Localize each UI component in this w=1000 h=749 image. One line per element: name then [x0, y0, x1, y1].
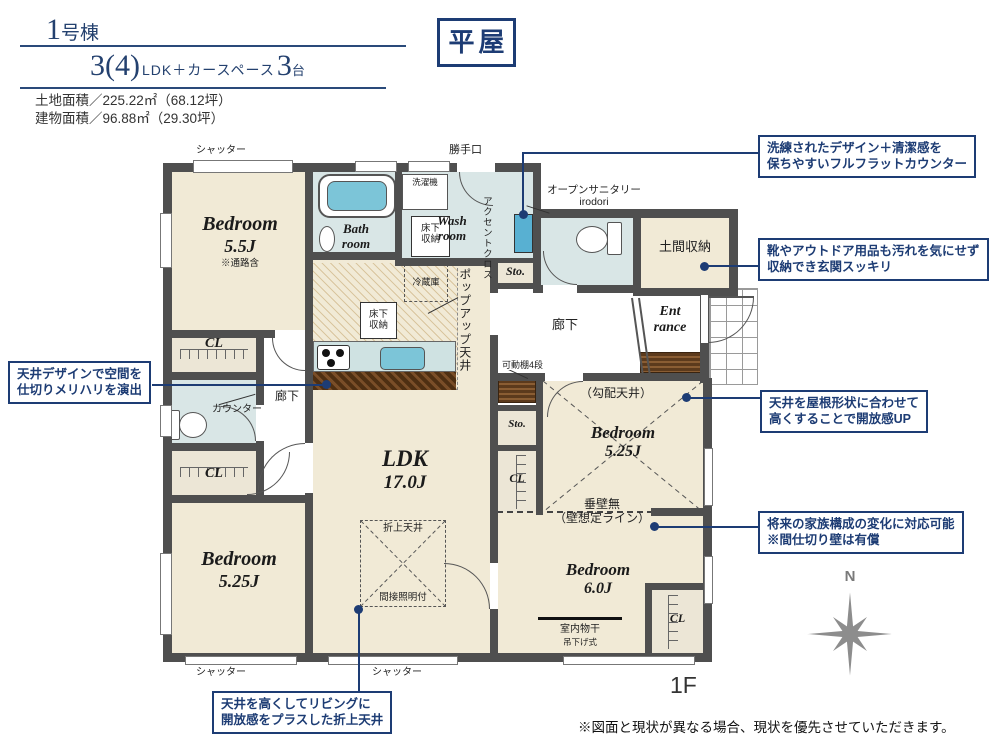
open-sanitary-basin	[514, 214, 533, 253]
room-name: Bedroom	[175, 548, 303, 571]
unit-number: 1	[46, 13, 61, 46]
window	[408, 161, 450, 172]
wall	[703, 378, 712, 662]
callout-line: 将来の家族構成の変化に対応可能	[767, 516, 955, 532]
shutter-label-bottom-1: シャッター	[196, 667, 246, 679]
wall	[163, 495, 305, 503]
bedroom-6-label: Bedroom 6.0J	[535, 560, 661, 598]
underfloor-line: 収納	[413, 235, 448, 246]
room-name: Ent	[642, 304, 698, 320]
fridge-label: 冷蔵庫	[406, 277, 446, 287]
open-sanitary-label: オープンサニタリー irodori	[540, 184, 648, 208]
wall	[729, 209, 738, 297]
land-area: 土地面積／225.22㎡（68.12坪）	[35, 93, 232, 109]
underfloor-storage-label: 床下 収納	[413, 224, 448, 246]
callout-dot	[700, 262, 709, 271]
underfloor-storage-label: 床下 収納	[363, 310, 394, 332]
shutter-window	[328, 656, 458, 665]
wall	[533, 209, 738, 218]
callout-connector	[522, 153, 524, 213]
callout-line: 靴やアウトドア用品も汚れを気にせず	[767, 243, 980, 259]
popup-ceiling-label: ポップアップ天井	[457, 268, 471, 378]
single-story-badge: 平屋	[437, 18, 516, 67]
floor-number: 1F	[670, 672, 697, 698]
window	[563, 656, 695, 665]
callout-connector	[687, 397, 760, 399]
closet-2-label: CL	[172, 466, 256, 482]
wall	[395, 163, 402, 258]
bedroom-525-left-label: Bedroom 5.25J	[175, 548, 303, 592]
sanitary-line: irodori	[540, 196, 648, 208]
movable-shelf-label: 可動棚4段	[502, 360, 543, 370]
wall	[498, 258, 533, 263]
disclaimer-text: ※図面と現状が異なる場合、現状を優先させていただきます。	[578, 720, 955, 736]
stove	[317, 345, 350, 370]
wall	[497, 373, 703, 381]
room-name: rance	[642, 320, 698, 336]
room-name: Bath	[330, 222, 382, 237]
floor-plan-page: 1号棟 3(4) LDK＋カースペース 3 台 土地面積／225.22㎡（68.…	[0, 0, 1000, 749]
kitchen-counter-front	[313, 372, 456, 390]
sloped-ceiling-label: （勾配天井）	[580, 387, 652, 401]
unit-suffix: 号棟	[61, 23, 99, 44]
front-door-leaf	[708, 296, 754, 298]
unit-title: 1号棟	[46, 13, 99, 48]
shutter-window	[185, 656, 297, 665]
door-opening	[305, 443, 313, 493]
callout-sloped-ceiling: 天井を屋根形状に合わせて 高くすることで開放感UP	[760, 390, 928, 433]
wall	[498, 283, 533, 289]
coffered-ceiling-label: 折上天井	[375, 523, 431, 535]
callout-connector	[522, 152, 758, 154]
callout-flat-counter: 洗練されたデザイン＋清潔感を 保ちやすいフルフラットカウンター	[758, 135, 976, 178]
burner	[327, 359, 335, 367]
closet-3-label: CL	[652, 612, 703, 626]
accent-cloth-label: アクセントクロス	[480, 196, 491, 288]
window	[704, 448, 713, 506]
wall	[533, 163, 541, 293]
callout-line: 保ちやすいフルフラットカウンター	[767, 156, 967, 172]
callout-connector	[152, 384, 326, 386]
sanitary-line: オープンサニタリー	[540, 184, 648, 196]
callout-ceiling-design: 天井デザインで空間を 仕切りメリハリを演出	[8, 361, 151, 404]
wall	[163, 372, 263, 380]
wall	[536, 377, 543, 515]
callout-line: 天井を屋根形状に合わせて	[769, 395, 919, 411]
room-size: 5.25J	[560, 443, 686, 461]
callout-dot	[519, 210, 528, 219]
hallway-top-label: 廊下	[552, 318, 578, 333]
callout-line: 収納でき玄関スッキリ	[767, 259, 980, 275]
callout-line: 天井を高くしてリビングに	[221, 696, 383, 712]
closet-1-label: CL	[172, 336, 256, 352]
window	[355, 161, 397, 172]
room-name: Bedroom	[535, 560, 661, 580]
door-opening	[543, 285, 577, 293]
callout-line: 仕切りメリハリを演出	[17, 382, 142, 398]
compass-north-label: N	[836, 568, 864, 585]
door-opening	[275, 330, 305, 338]
movable-shelf	[498, 379, 536, 403]
entrance-label: Ent rance	[642, 304, 698, 336]
callout-line: 高くすることで開放感UP	[769, 411, 919, 427]
bathtub-inner	[327, 181, 387, 211]
callout-dot	[322, 380, 331, 389]
plan-mid: LDK＋カースペース	[142, 62, 275, 78]
building-area: 建物面積／96.88㎡（29.30坪）	[35, 111, 224, 127]
wall	[305, 252, 395, 260]
doma-storage-label: 土間収納	[641, 240, 729, 255]
wall	[498, 405, 536, 411]
room-size: 5.5J	[185, 236, 295, 257]
door-opening	[490, 563, 498, 609]
callout-dot	[354, 605, 363, 614]
door-opening	[457, 163, 495, 172]
callout-connector	[655, 526, 758, 528]
hallway-left-label: 廊下	[268, 390, 306, 404]
room-name: Bedroom	[560, 423, 686, 443]
wall	[651, 508, 703, 516]
toilet-tank	[607, 222, 622, 255]
bathroom-label: Bath room	[330, 222, 382, 252]
room-size: 5.25J	[175, 571, 303, 592]
wall	[305, 163, 313, 653]
compass-rose-icon	[795, 586, 905, 682]
underfloor-line: 収納	[363, 321, 394, 332]
toilet-bowl	[179, 412, 207, 438]
window	[160, 553, 172, 635]
callout-partition: 将来の家族構成の変化に対応可能 ※間仕切り壁は有償	[758, 511, 964, 554]
callout-connector	[358, 610, 360, 692]
toilet-bowl	[576, 226, 608, 253]
ldk-label: LDK 17.0J	[355, 446, 455, 494]
callout-dot	[682, 393, 691, 402]
window	[160, 213, 172, 268]
wall	[633, 288, 729, 296]
window	[160, 405, 172, 437]
shutter-label-bottom-2: シャッター	[372, 667, 422, 679]
callout-line: 洗練されたデザイン＋清潔感を	[767, 140, 967, 156]
plan-tail: 台	[292, 64, 305, 79]
room-note: ※通路含	[185, 259, 295, 270]
indoor-drying-label: 室内物干	[545, 624, 615, 636]
no-wall-label: 垂壁無 （壁想定ライン）	[552, 498, 652, 526]
burner	[336, 349, 344, 357]
bedroom-525-right-label: Bedroom 5.25J	[560, 423, 686, 461]
wall	[633, 218, 641, 288]
window	[704, 556, 713, 604]
door-opening	[701, 295, 708, 343]
callout-connector	[705, 265, 758, 267]
door-opening	[490, 293, 498, 335]
kitchen-sink	[380, 347, 425, 370]
room-name: LDK	[355, 446, 455, 472]
door-opening	[545, 373, 583, 381]
counter-label: カウンター	[212, 404, 262, 416]
no-wall-line: 垂壁無	[552, 498, 652, 512]
hanging-type-label: 吊下げ式	[545, 638, 615, 648]
no-wall-line: （壁想定ライン）	[552, 512, 652, 526]
callout-dot	[650, 522, 659, 531]
callout-line: 天井デザインで空間を	[17, 366, 142, 382]
back-door-label: 勝手口	[449, 144, 482, 157]
callout-coffered-ceiling: 天井を高くしてリビングに 開放感をプラスした折上天井	[212, 691, 392, 734]
bedroom-55-label: Bedroom 5.5J ※通路含	[185, 213, 295, 270]
callout-line: ※間仕切り壁は有償	[767, 532, 955, 548]
washer-label: 洗濯機	[412, 178, 438, 188]
wall	[163, 443, 263, 451]
indirect-light-label: 間接照明付	[372, 593, 434, 604]
callout-doma-storage: 靴やアウトドア用品も汚れを気にせず 収納でき玄関スッキリ	[758, 238, 989, 281]
room-size: 6.0J	[535, 580, 661, 598]
indoor-drying-bar	[538, 617, 622, 620]
header-rule-bottom	[20, 87, 386, 89]
callout-line: 開放感をプラスした折上天井	[221, 712, 383, 728]
plan-title: 3(4) LDK＋カースペース 3 台	[90, 49, 305, 84]
plan-main: 3(4)	[90, 49, 140, 84]
closet-mid-label: CL	[498, 472, 536, 486]
room-size: 17.0J	[355, 472, 455, 494]
shutter-label-top: シャッター	[196, 145, 246, 157]
burner	[322, 349, 330, 357]
storage-mid-label: Sto.	[498, 418, 536, 431]
shutter-window	[193, 160, 293, 173]
plan-count: 3	[277, 49, 292, 84]
room-name: room	[330, 237, 382, 252]
storage-top-label: Sto.	[498, 265, 533, 279]
room-name: Bedroom	[185, 213, 295, 236]
wall	[498, 445, 536, 451]
